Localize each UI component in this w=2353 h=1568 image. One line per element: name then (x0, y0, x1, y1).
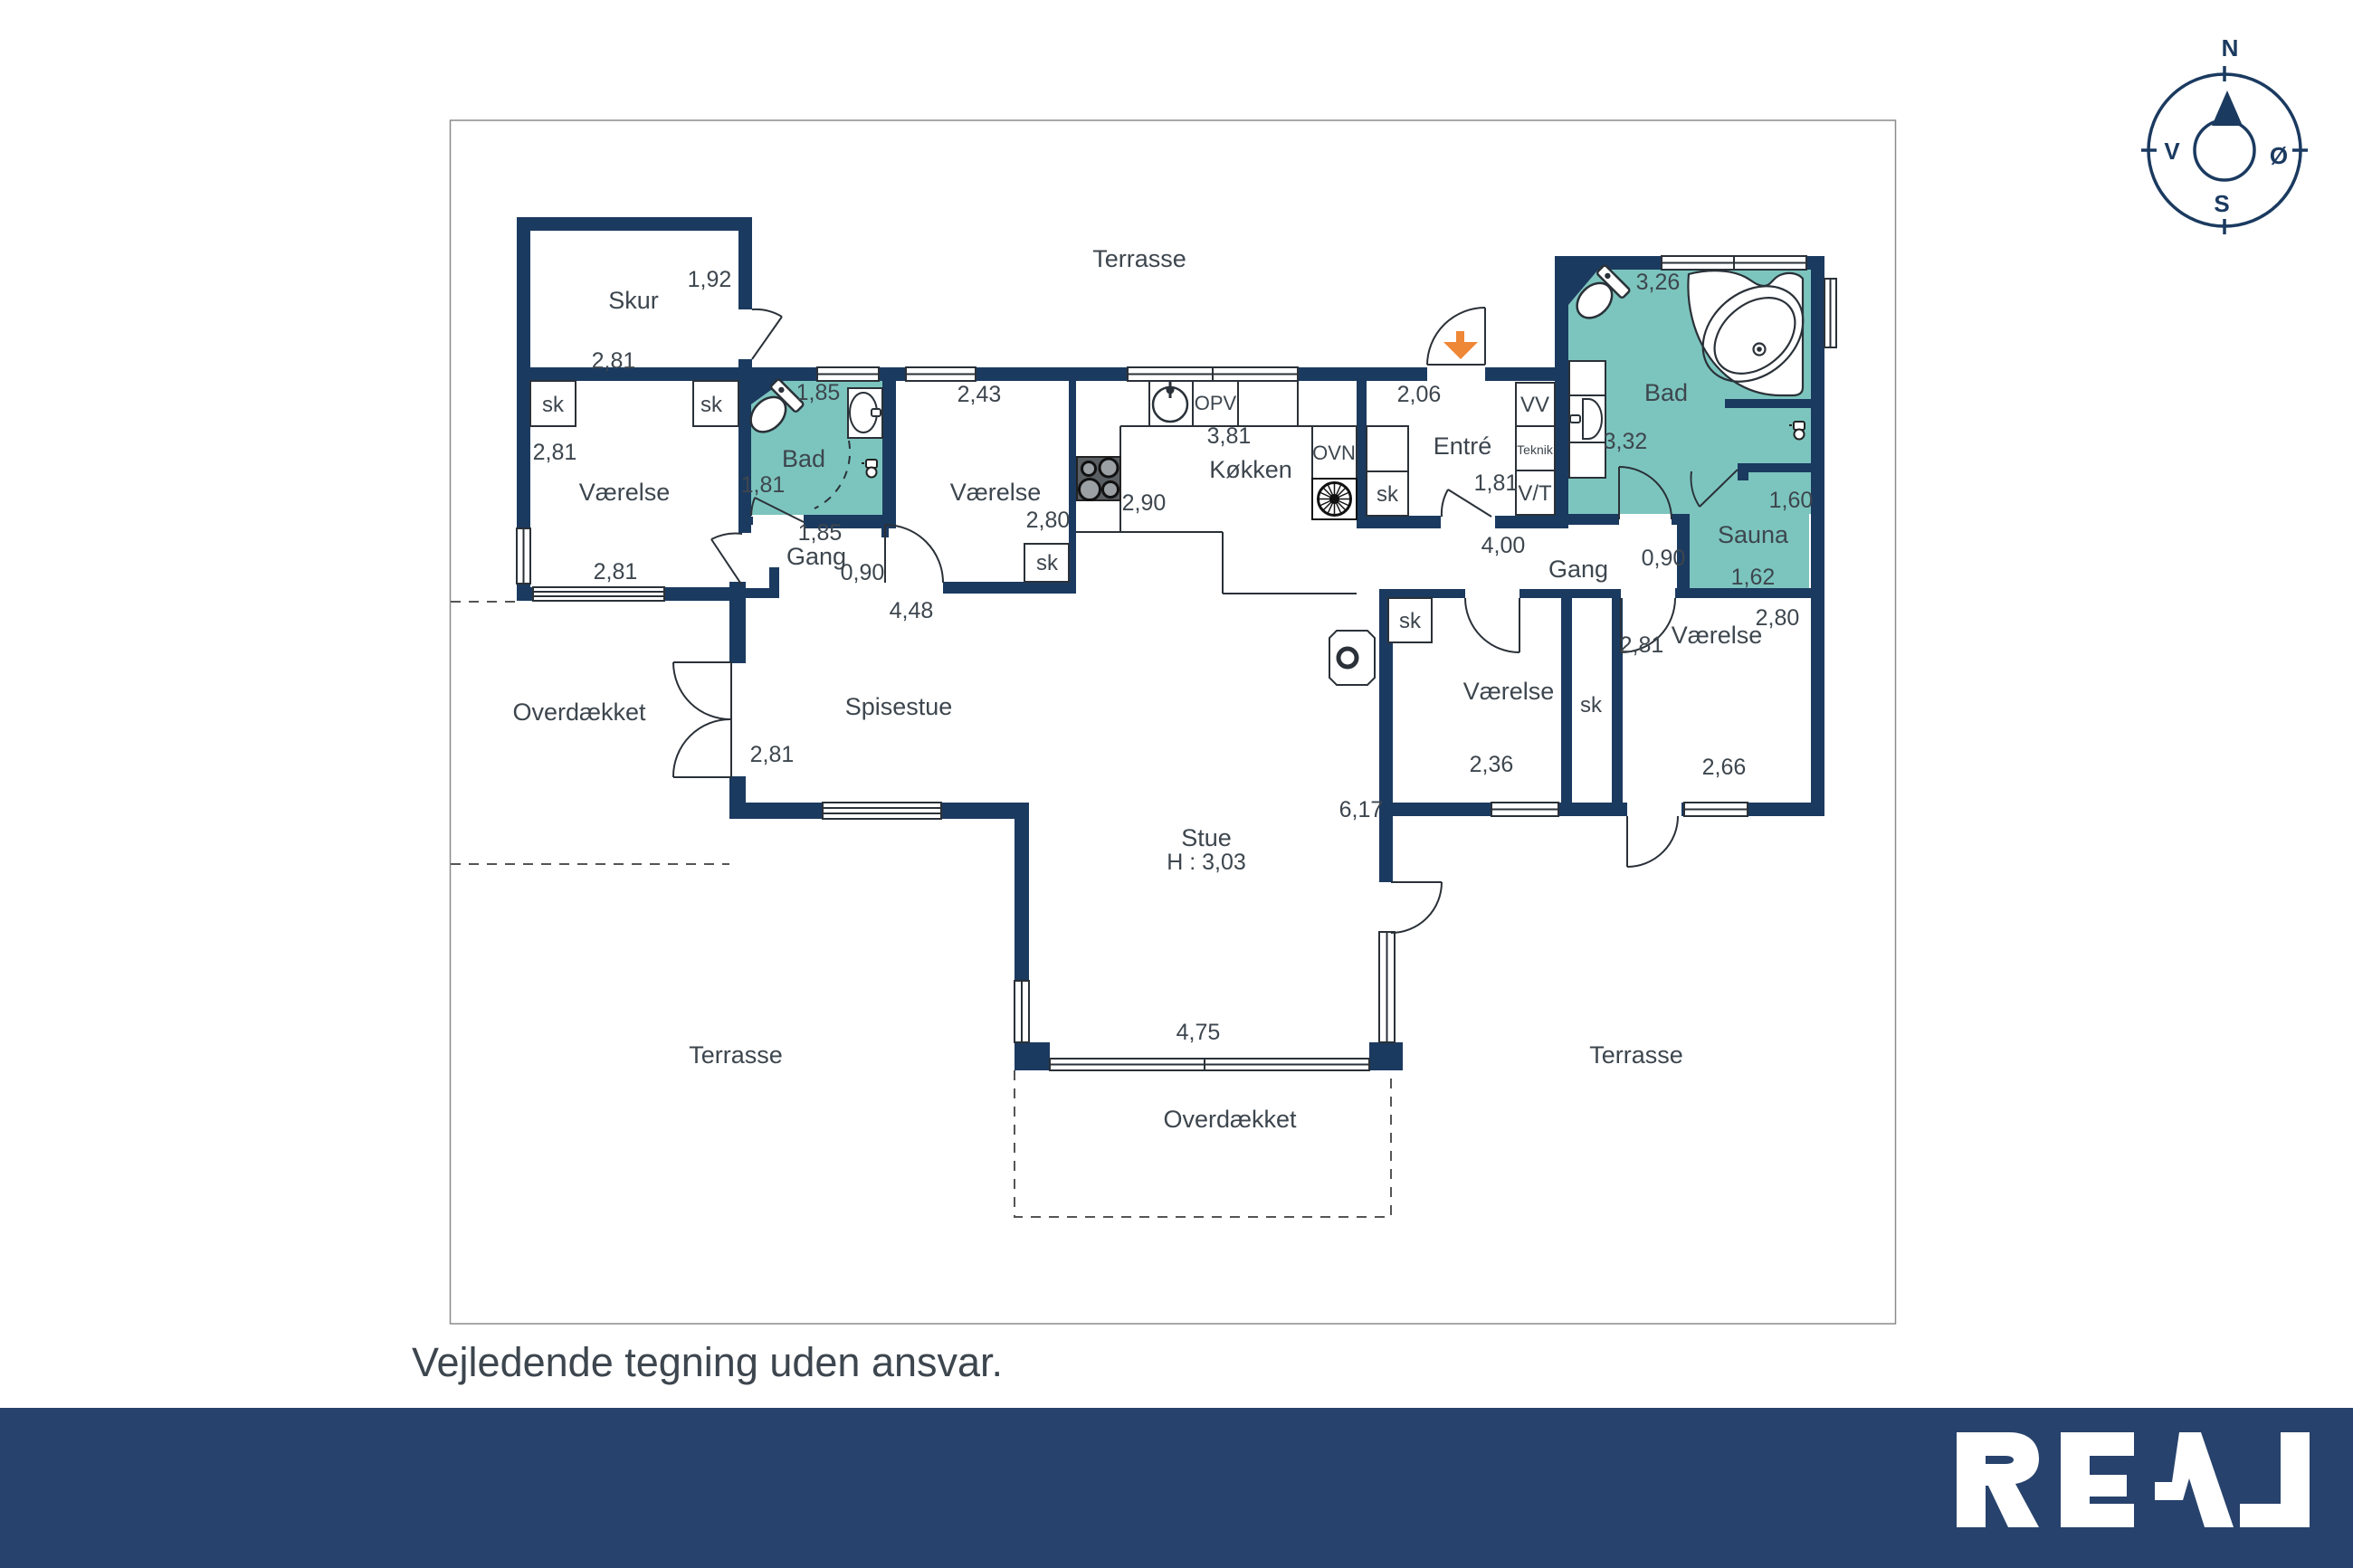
svg-text:N: N (2222, 34, 2239, 62)
svg-text:4,75: 4,75 (1176, 1020, 1221, 1045)
svg-text:Værelse: Værelse (579, 479, 671, 506)
svg-text:sk: sk (542, 393, 565, 417)
svg-text:Teknik: Teknik (1517, 442, 1554, 457)
svg-text:3,26: 3,26 (1636, 270, 1681, 295)
svg-text:Køkken: Køkken (1209, 456, 1292, 483)
svg-text:Gang: Gang (786, 543, 846, 570)
svg-text:S: S (2214, 190, 2229, 217)
svg-text:4,00: 4,00 (1481, 533, 1526, 558)
svg-text:VV: VV (1520, 393, 1549, 417)
svg-text:2,06: 2,06 (1397, 382, 1442, 407)
svg-text:sk: sk (1377, 482, 1399, 507)
svg-text:Skur: Skur (608, 287, 659, 314)
svg-text:Bad: Bad (1644, 379, 1688, 406)
svg-text:2,66: 2,66 (1702, 755, 1747, 780)
svg-text:H : 3,03: H : 3,03 (1167, 850, 1246, 875)
svg-text:sk: sk (700, 393, 723, 417)
svg-text:Bad: Bad (782, 445, 825, 472)
svg-text:2,81: 2,81 (594, 559, 638, 584)
svg-text:Overdækket: Overdækket (512, 698, 646, 726)
svg-text:2,80: 2,80 (1756, 605, 1800, 631)
svg-text:1,62: 1,62 (1731, 565, 1776, 590)
svg-text:Spisestue: Spisestue (845, 693, 953, 720)
svg-text:1,81: 1,81 (1474, 470, 1519, 496)
svg-text:2,36: 2,36 (1470, 752, 1514, 777)
svg-text:2,81: 2,81 (750, 742, 795, 767)
svg-text:2,81: 2,81 (592, 348, 636, 374)
svg-text:1,92: 1,92 (688, 267, 732, 292)
svg-text:3,81: 3,81 (1207, 423, 1252, 449)
svg-text:1,81: 1,81 (741, 472, 786, 498)
svg-text:1,85: 1,85 (796, 380, 841, 405)
svg-text:Stue: Stue (1181, 824, 1232, 851)
svg-text:sk: sk (1399, 609, 1422, 633)
svg-text:Entré: Entré (1434, 432, 1492, 460)
svg-text:sk: sk (1580, 693, 1603, 717)
svg-text:1,85: 1,85 (798, 520, 843, 546)
svg-text:sk: sk (1036, 551, 1059, 575)
svg-text:Værelse: Værelse (1463, 678, 1555, 705)
svg-text:OPV: OPV (1195, 392, 1237, 414)
svg-text:Terrasse: Terrasse (689, 1041, 783, 1069)
svg-text:Ø: Ø (2270, 142, 2288, 169)
svg-text:1,60: 1,60 (1769, 488, 1814, 513)
svg-text:6,17: 6,17 (1339, 797, 1384, 822)
svg-text:Værelse: Værelse (950, 479, 1042, 506)
svg-text:4,48: 4,48 (890, 598, 934, 623)
svg-text:0,90: 0,90 (841, 560, 885, 585)
svg-text:0,90: 0,90 (1642, 546, 1686, 571)
svg-text:2,90: 2,90 (1122, 490, 1167, 516)
svg-text:Terrasse: Terrasse (1092, 245, 1186, 272)
svg-text:Overdækket: Overdækket (1163, 1106, 1297, 1133)
svg-text:2,81: 2,81 (1620, 632, 1664, 658)
svg-text:V: V (2164, 138, 2180, 165)
svg-text:Vejledende tegning uden ansvar: Vejledende tegning uden ansvar. (412, 1339, 1003, 1385)
svg-text:V/T: V/T (1518, 481, 1552, 506)
svg-text:OVN: OVN (1312, 442, 1356, 464)
svg-text:3,32: 3,32 (1604, 429, 1648, 454)
svg-text:2,80: 2,80 (1026, 508, 1071, 533)
svg-text:2,43: 2,43 (957, 382, 1002, 407)
svg-text:Gang: Gang (1548, 556, 1608, 583)
svg-text:Sauna: Sauna (1718, 521, 1789, 548)
svg-text:Værelse: Værelse (1672, 622, 1763, 649)
svg-text:2,81: 2,81 (533, 440, 577, 465)
svg-text:Terrasse: Terrasse (1589, 1041, 1683, 1069)
